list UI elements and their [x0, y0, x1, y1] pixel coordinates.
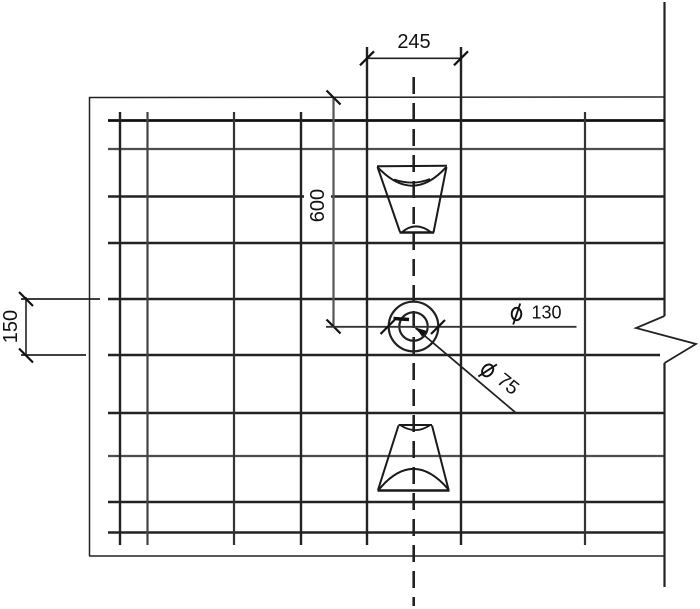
svg-text:130: 130: [532, 303, 562, 323]
svg-text:600: 600: [307, 189, 329, 222]
svg-text:75: 75: [493, 369, 524, 400]
svg-text:150: 150: [0, 310, 22, 343]
svg-text:245: 245: [397, 31, 430, 53]
